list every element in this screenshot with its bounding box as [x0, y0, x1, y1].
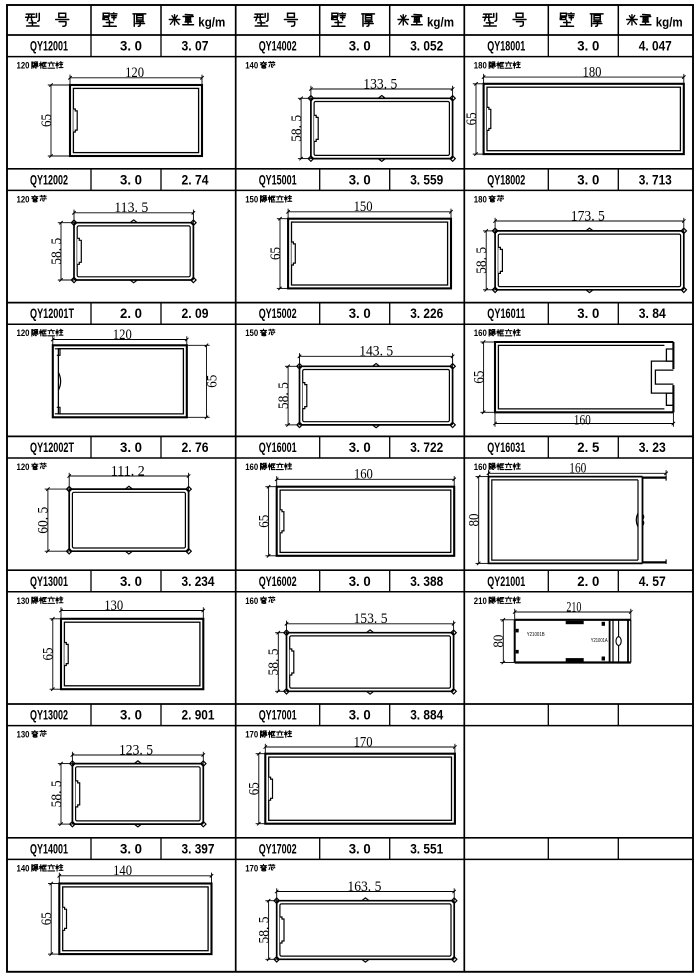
svg-text:150: 150 [354, 199, 373, 215]
svg-text:QY21001: QY21001 [487, 573, 525, 589]
svg-text:kg/m: kg/m [427, 15, 454, 30]
svg-text:130: 130 [17, 730, 30, 741]
svg-text:111. 2: 111. 2 [111, 463, 145, 479]
svg-text:130: 130 [17, 596, 30, 607]
svg-text:173. 5: 173. 5 [571, 208, 605, 224]
svg-text:3. 0: 3. 0 [120, 38, 142, 54]
svg-text:2. 09: 2. 09 [182, 305, 209, 321]
svg-text:210: 210 [474, 596, 487, 607]
svg-text:140: 140 [17, 863, 30, 874]
svg-text:58. 5: 58. 5 [49, 780, 65, 807]
svg-text:QY17002: QY17002 [259, 840, 297, 856]
svg-text:80: 80 [467, 514, 483, 527]
svg-text:QY12002T: QY12002T [30, 439, 74, 455]
svg-text:QY16002: QY16002 [259, 573, 297, 589]
svg-text:123. 5: 123. 5 [119, 742, 153, 758]
svg-text:65: 65 [464, 112, 480, 125]
svg-text:QY14002: QY14002 [259, 38, 297, 54]
svg-text:210: 210 [566, 599, 581, 615]
svg-text:65: 65 [39, 114, 55, 127]
svg-text:QY16031: QY16031 [487, 439, 525, 455]
svg-text:65: 65 [268, 247, 284, 260]
svg-text:3. 0: 3. 0 [577, 38, 599, 54]
svg-text:3. 07: 3. 07 [182, 38, 209, 54]
svg-text:3. 0: 3. 0 [349, 171, 371, 187]
svg-text:153. 5: 153. 5 [354, 611, 388, 627]
svg-text:QY15001: QY15001 [259, 171, 297, 187]
svg-text:133. 5: 133. 5 [363, 76, 397, 92]
svg-text:58. 5: 58. 5 [256, 917, 272, 944]
svg-text:180: 180 [583, 65, 602, 81]
svg-text:180: 180 [474, 61, 487, 72]
svg-text:3. 884: 3. 884 [410, 707, 443, 723]
svg-text:3. 0: 3. 0 [349, 38, 371, 54]
svg-text:58. 5: 58. 5 [266, 649, 282, 676]
svg-text:3. 0: 3. 0 [349, 840, 371, 856]
svg-text:2. 0: 2. 0 [120, 305, 142, 321]
svg-text:120: 120 [125, 65, 144, 81]
svg-text:120: 120 [17, 194, 30, 205]
svg-text:3. 23: 3. 23 [639, 439, 666, 455]
svg-text:4. 57: 4. 57 [639, 573, 666, 589]
svg-text:170: 170 [245, 730, 258, 741]
svg-text:143. 5: 143. 5 [359, 344, 393, 360]
svg-text:120: 120 [17, 328, 30, 339]
svg-text:58. 5: 58. 5 [289, 115, 305, 142]
svg-text:120: 120 [17, 462, 30, 473]
svg-text:150: 150 [245, 328, 258, 339]
svg-text:163. 5: 163. 5 [347, 879, 381, 895]
svg-text:58. 5: 58. 5 [474, 247, 490, 274]
svg-text:170: 170 [354, 734, 373, 750]
svg-text:QY18001: QY18001 [487, 38, 525, 54]
svg-text:QY12001: QY12001 [30, 38, 68, 54]
svg-text:3. 234: 3. 234 [182, 573, 215, 589]
svg-text:kg/m: kg/m [656, 15, 683, 30]
svg-text:QY16001: QY16001 [259, 439, 297, 455]
svg-text:65: 65 [39, 912, 55, 925]
svg-text:2. 901: 2. 901 [182, 707, 215, 723]
svg-text:3. 0: 3. 0 [349, 305, 371, 321]
svg-text:QY12001T: QY12001T [30, 305, 74, 321]
svg-text:65: 65 [205, 375, 221, 388]
svg-text:3. 052: 3. 052 [410, 38, 443, 54]
svg-text:140: 140 [245, 61, 258, 72]
svg-text:160: 160 [474, 328, 487, 339]
svg-text:Y21001B: Y21001B [527, 632, 546, 638]
svg-text:2. 74: 2. 74 [182, 171, 209, 187]
svg-text:150: 150 [245, 194, 258, 205]
svg-text:180: 180 [474, 194, 487, 205]
svg-text:QY16011: QY16011 [487, 305, 525, 321]
svg-text:3. 0: 3. 0 [120, 171, 142, 187]
svg-text:3. 84: 3. 84 [639, 305, 666, 321]
svg-text:QY18002: QY18002 [487, 171, 525, 187]
svg-text:170: 170 [245, 863, 258, 874]
svg-text:130: 130 [104, 598, 123, 614]
svg-text:140: 140 [113, 863, 132, 879]
svg-text:3. 559: 3. 559 [410, 171, 443, 187]
svg-text:3. 0: 3. 0 [120, 573, 142, 589]
svg-text:3. 397: 3. 397 [182, 840, 215, 856]
svg-text:3. 0: 3. 0 [349, 573, 371, 589]
svg-text:58. 5: 58. 5 [49, 238, 65, 265]
svg-text:65: 65 [247, 782, 263, 795]
svg-text:3. 226: 3. 226 [410, 305, 443, 321]
svg-text:113. 5: 113. 5 [114, 200, 148, 216]
svg-text:65: 65 [256, 515, 272, 528]
svg-text:160: 160 [569, 461, 586, 477]
svg-text:2. 0: 2. 0 [577, 573, 599, 589]
svg-text:160: 160 [354, 467, 373, 483]
svg-text:65: 65 [471, 371, 487, 384]
svg-text:2. 5: 2. 5 [577, 439, 599, 455]
svg-text:QY17001: QY17001 [259, 707, 297, 723]
svg-text:160: 160 [474, 462, 487, 473]
svg-text:120: 120 [113, 327, 132, 343]
svg-text:Y21001A: Y21001A [591, 638, 609, 644]
svg-text:QY15002: QY15002 [259, 305, 297, 321]
svg-text:160: 160 [245, 596, 258, 607]
svg-text:3. 551: 3. 551 [410, 840, 443, 856]
svg-text:65: 65 [41, 648, 57, 661]
svg-text:120: 120 [17, 61, 30, 72]
svg-text:3. 0: 3. 0 [120, 707, 142, 723]
svg-text:3. 713: 3. 713 [639, 171, 672, 187]
svg-text:3. 0: 3. 0 [349, 707, 371, 723]
svg-text:3. 0: 3. 0 [120, 439, 142, 455]
svg-text:160: 160 [574, 413, 591, 429]
svg-text:QY13002: QY13002 [30, 707, 68, 723]
svg-text:kg/m: kg/m [198, 15, 225, 30]
svg-text:4. 047: 4. 047 [639, 38, 672, 54]
svg-text:QY13001: QY13001 [30, 573, 68, 589]
svg-text:3. 722: 3. 722 [410, 439, 443, 455]
svg-text:3. 0: 3. 0 [577, 305, 599, 321]
svg-text:QY14001: QY14001 [30, 840, 68, 856]
svg-text:2. 76: 2. 76 [182, 439, 209, 455]
svg-text:3. 0: 3. 0 [349, 439, 371, 455]
svg-text:3. 0: 3. 0 [577, 171, 599, 187]
svg-text:3. 388: 3. 388 [410, 573, 443, 589]
svg-text:58. 5: 58. 5 [276, 382, 292, 409]
svg-text:160: 160 [245, 462, 258, 473]
svg-text:80: 80 [491, 635, 507, 648]
svg-text:3. 0: 3. 0 [120, 840, 142, 856]
svg-text:QY12002: QY12002 [30, 171, 68, 187]
svg-text:60. 5: 60. 5 [36, 507, 52, 534]
